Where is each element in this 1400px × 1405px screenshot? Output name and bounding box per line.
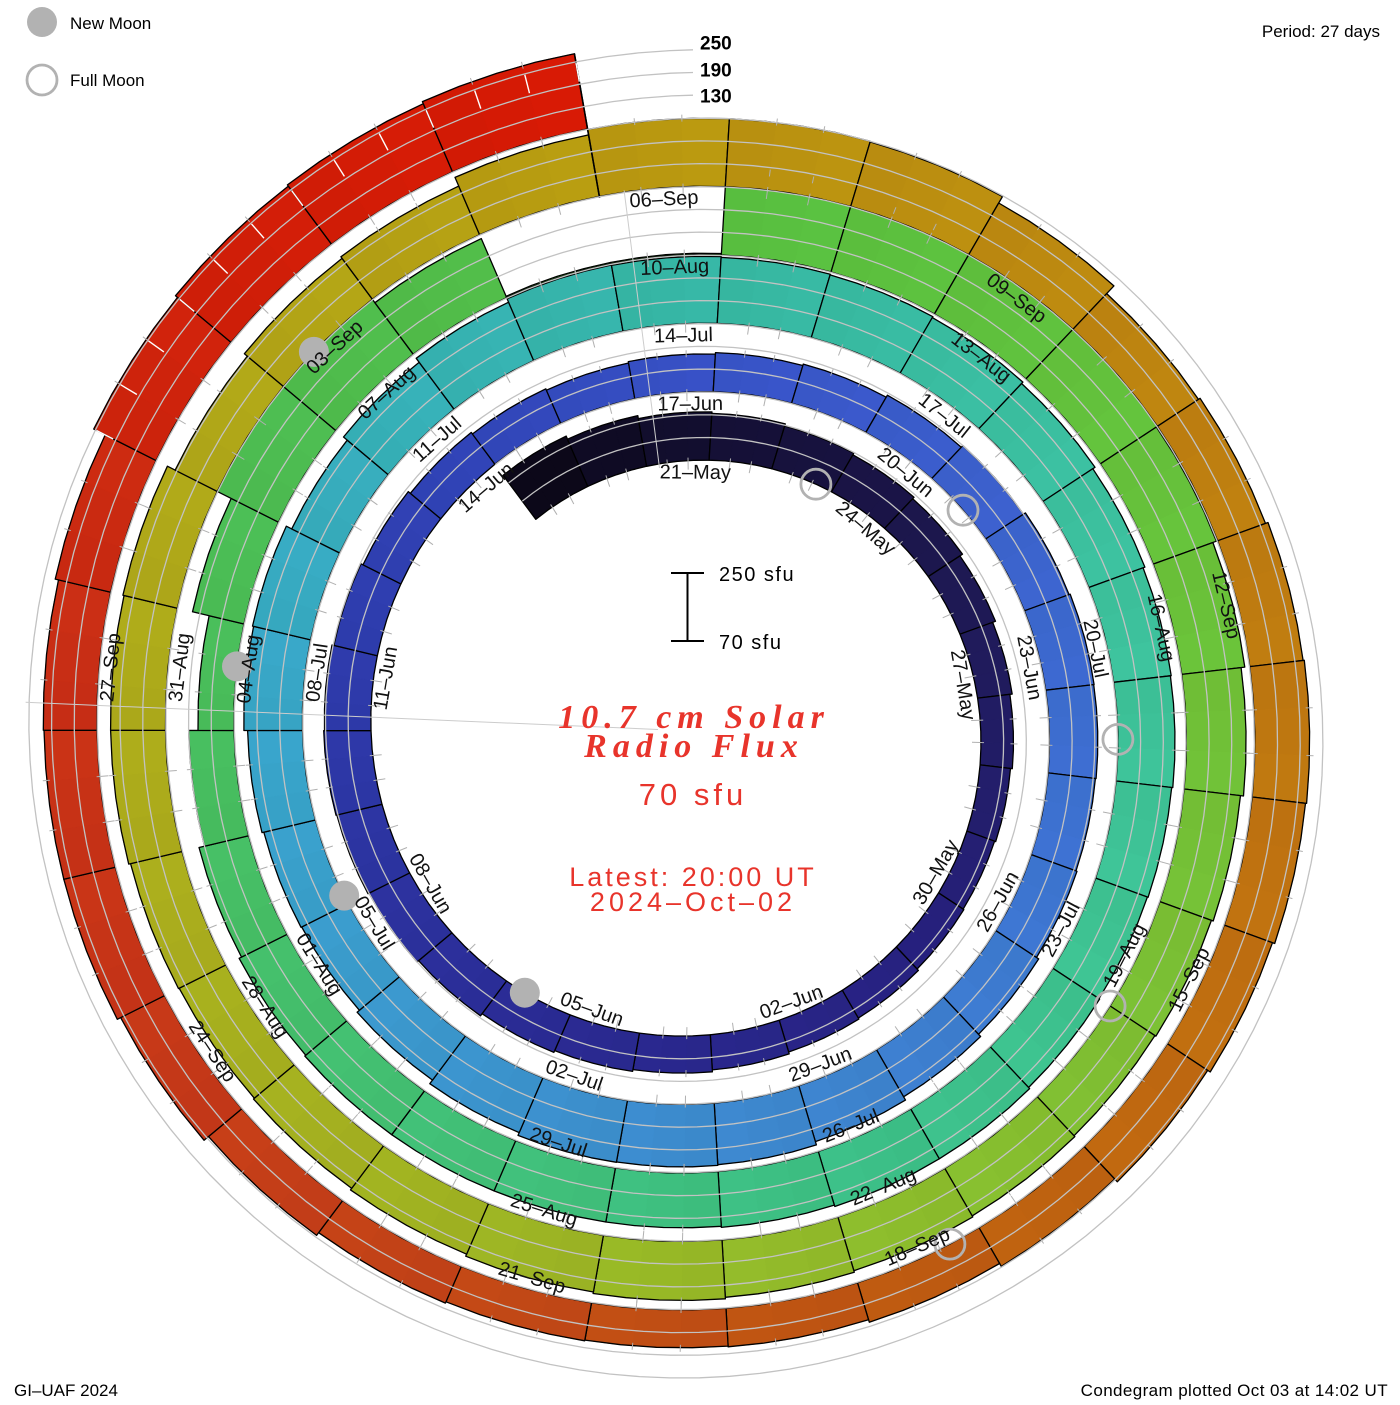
svg-text:130: 130	[700, 87, 732, 108]
svg-text:Period: 27 days: Period: 27 days	[1262, 22, 1380, 41]
svg-text:Condegram plotted Oct 03 at 14: Condegram plotted Oct 03 at 14:02 UT	[1081, 1381, 1388, 1400]
svg-text:GI–UAF 2024: GI–UAF 2024	[14, 1381, 118, 1400]
svg-text:Full Moon: Full Moon	[70, 71, 145, 90]
svg-text:21–May: 21–May	[660, 461, 731, 484]
svg-text:06–Sep: 06–Sep	[629, 187, 699, 213]
svg-text:New Moon: New Moon	[70, 14, 151, 33]
svg-text:10–Aug: 10–Aug	[640, 255, 710, 280]
svg-text:250: 250	[700, 34, 732, 55]
svg-text:Radio Flux: Radio Flux	[583, 728, 804, 765]
svg-text:2024–Oct–02: 2024–Oct–02	[590, 887, 796, 917]
svg-text:190: 190	[700, 61, 732, 82]
svg-text:14–Jul: 14–Jul	[654, 324, 713, 347]
svg-text:250 sfu: 250 sfu	[719, 564, 795, 586]
svg-text:70 sfu: 70 sfu	[639, 777, 747, 812]
svg-text:17–Jun: 17–Jun	[657, 393, 723, 416]
svg-text:70 sfu: 70 sfu	[719, 632, 782, 654]
